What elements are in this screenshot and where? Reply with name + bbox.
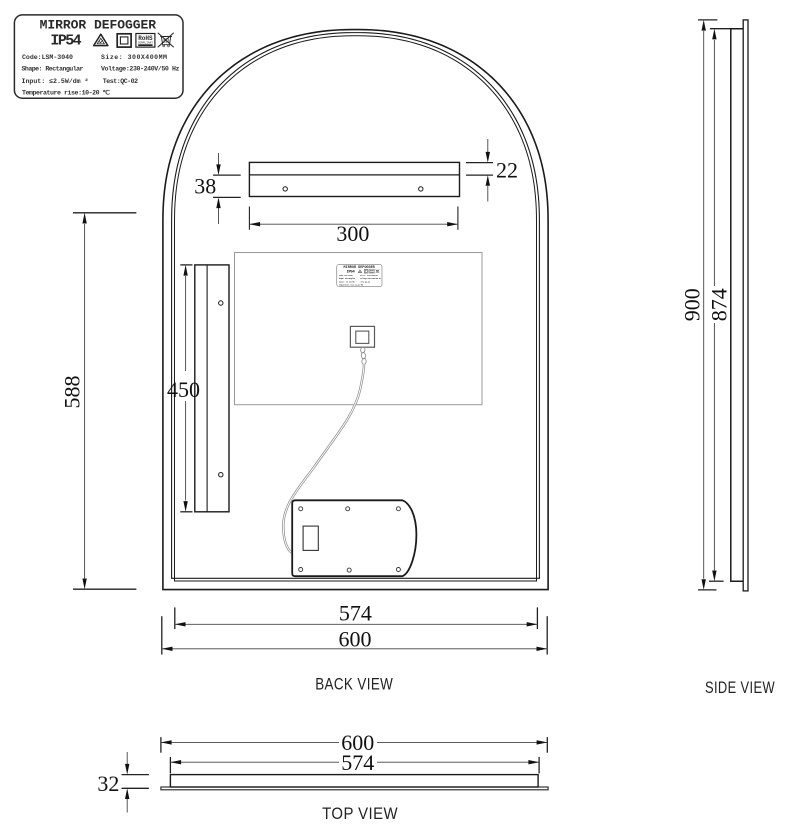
svg-text:588: 588 <box>60 376 85 409</box>
svg-text:Voltage:230-240V/50 Hz: Voltage:230-240V/50 Hz <box>101 65 180 72</box>
svg-text:450: 450 <box>167 377 200 402</box>
svg-text:BACK VIEW: BACK VIEW <box>315 675 393 694</box>
svg-text:TOP VIEW: TOP VIEW <box>322 804 398 823</box>
svg-text:COMPLIANT: COMPLIANT <box>138 41 153 44</box>
svg-text:574: 574 <box>339 601 372 626</box>
svg-text:Size: 300X400MM: Size: 300X400MM <box>101 54 167 61</box>
svg-text:IP54: IP54 <box>50 33 81 50</box>
svg-text:600: 600 <box>339 626 372 651</box>
svg-text:574: 574 <box>341 750 374 775</box>
svg-text:38: 38 <box>194 174 216 199</box>
svg-text:Test:QC-02: Test:QC-02 <box>103 78 138 85</box>
svg-text:900: 900 <box>680 288 705 321</box>
svg-text:Shape: Rectangular: Shape: Rectangular <box>22 65 84 72</box>
svg-text:32: 32 <box>97 771 119 796</box>
svg-text:22: 22 <box>496 158 518 183</box>
svg-text:Temperature rise:10-20 ℃: Temperature rise:10-20 ℃ <box>22 88 111 96</box>
svg-text:Input: ≤2.5W/dm ²: Input: ≤2.5W/dm ² <box>22 78 89 85</box>
svg-text:300: 300 <box>336 221 369 246</box>
svg-text:874: 874 <box>707 288 732 321</box>
svg-text:Code:LSM-3040: Code:LSM-3040 <box>22 54 73 61</box>
svg-text:MIRROR DEFOGGER: MIRROR DEFOGGER <box>40 18 157 33</box>
svg-text:SIDE VIEW: SIDE VIEW <box>705 678 775 697</box>
